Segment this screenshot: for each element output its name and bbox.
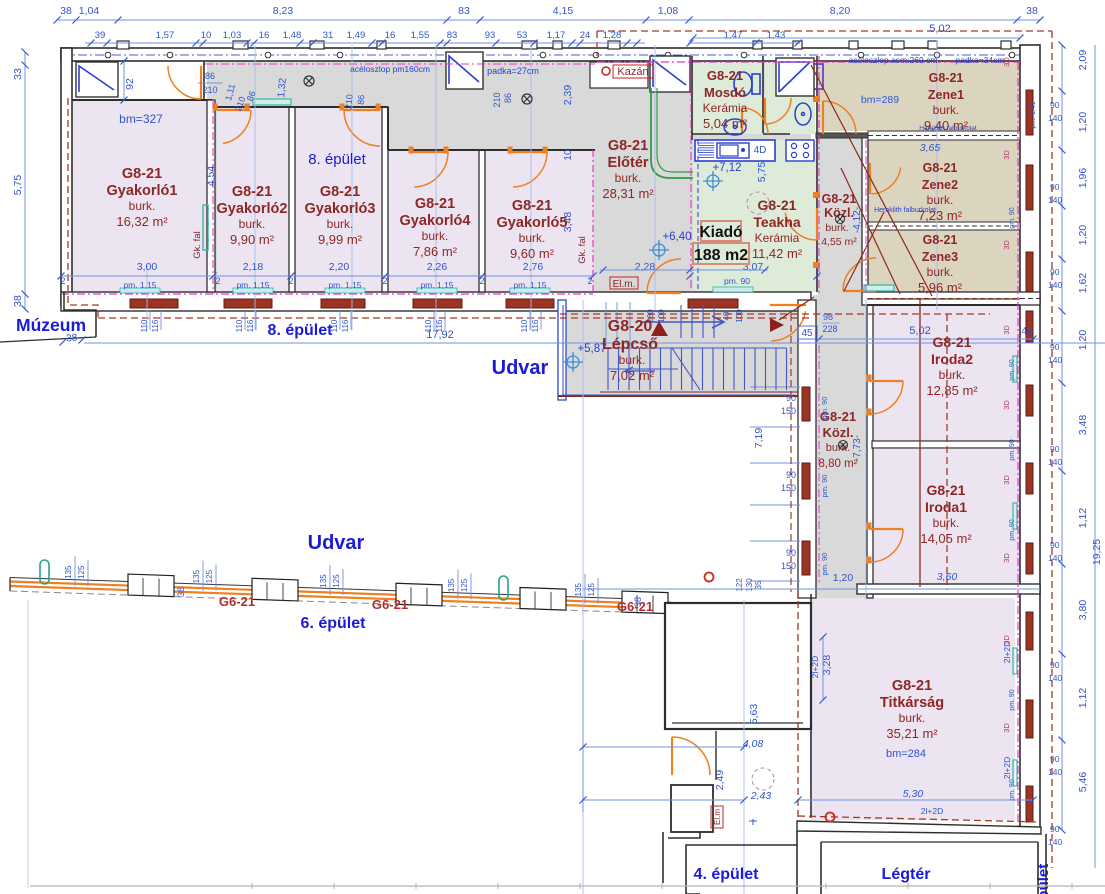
- svg-text:6. épület: 6. épület: [301, 615, 367, 632]
- svg-text:Heraklith falburkolat: Heraklith falburkolat: [919, 125, 977, 132]
- svg-text:9,99 m²: 9,99 m²: [318, 232, 363, 247]
- svg-text:1,55: 1,55: [411, 30, 430, 41]
- svg-text:2: 2: [215, 276, 220, 286]
- svg-text:Gyakorló3: Gyakorló3: [305, 201, 376, 217]
- svg-text:Udvar: Udvar: [308, 532, 365, 554]
- svg-text:24: 24: [580, 30, 591, 41]
- svg-text:93: 93: [485, 30, 496, 41]
- svg-text:1,08: 1,08: [658, 5, 679, 17]
- svg-text:116: 116: [151, 319, 160, 332]
- svg-text:burk.: burk.: [927, 265, 954, 279]
- svg-text:100: 100: [735, 309, 744, 323]
- svg-text:38: 38: [60, 5, 72, 17]
- svg-text:8,20: 8,20: [830, 5, 851, 17]
- svg-text:90: 90: [1050, 540, 1060, 550]
- svg-text:110: 110: [520, 319, 529, 332]
- svg-text:188 m2: 188 m2: [694, 247, 748, 264]
- svg-text:38: 38: [1026, 5, 1038, 17]
- svg-text:140: 140: [1048, 113, 1062, 123]
- svg-text:3D: 3D: [1002, 400, 1011, 410]
- svg-text:pm. 1,15: pm. 1,15: [123, 280, 156, 290]
- svg-text:bm=284: bm=284: [886, 748, 926, 760]
- svg-text:El.m: El.m: [713, 809, 722, 825]
- svg-text:2,09: 2,09: [1077, 50, 1089, 71]
- svg-text:G6-21: G6-21: [617, 599, 653, 614]
- svg-text:9,90 m²: 9,90 m²: [230, 232, 275, 247]
- svg-text:acéloszlop pm160cm: acéloszlop pm160cm: [350, 64, 430, 74]
- svg-text:2,26: 2,26: [427, 261, 448, 273]
- svg-text:Titkárság: Titkárság: [880, 695, 944, 711]
- svg-text:7,19: 7,19: [753, 428, 765, 449]
- svg-text:Kerámia: Kerámia: [703, 101, 748, 115]
- svg-text:9,60 m²: 9,60 m²: [510, 246, 555, 261]
- svg-text:12,85 m²: 12,85 m²: [926, 383, 978, 398]
- svg-text:Gyakorló2: Gyakorló2: [217, 201, 288, 217]
- svg-text:2,20: 2,20: [329, 261, 350, 273]
- svg-text:150: 150: [781, 406, 796, 416]
- svg-text:90: 90: [1050, 100, 1060, 110]
- svg-text:G8-21: G8-21: [927, 482, 966, 498]
- svg-text:1,96: 1,96: [1077, 168, 1089, 189]
- svg-text:3D: 3D: [1002, 723, 1011, 733]
- svg-text:Udvar: Udvar: [492, 357, 549, 379]
- svg-text:3,80: 3,80: [1077, 600, 1089, 621]
- svg-text:1,62: 1,62: [1077, 273, 1089, 294]
- svg-text:2,76: 2,76: [523, 261, 544, 273]
- svg-text:135: 135: [447, 578, 456, 592]
- svg-text:burk.: burk.: [825, 222, 848, 234]
- svg-text:1,03: 1,03: [223, 30, 242, 41]
- svg-text:100: 100: [657, 309, 666, 323]
- svg-text:pm. 90: pm. 90: [1009, 439, 1016, 461]
- svg-text:40: 40: [722, 311, 731, 320]
- svg-text:125: 125: [77, 565, 86, 579]
- svg-text:5,02: 5,02: [929, 23, 950, 35]
- svg-text:140: 140: [1048, 280, 1062, 290]
- svg-text:2,28: 2,28: [635, 261, 656, 273]
- svg-text:G8-21: G8-21: [923, 161, 958, 175]
- svg-text:90: 90: [1050, 754, 1060, 764]
- svg-text:burk.: burk.: [927, 193, 954, 207]
- svg-text:burk.: burk.: [519, 231, 546, 245]
- svg-text:83: 83: [458, 5, 470, 17]
- svg-text:G6-21: G6-21: [372, 597, 408, 612]
- svg-text:burk.: burk.: [422, 229, 449, 243]
- svg-text:burk.: burk.: [933, 103, 960, 117]
- svg-text:Heroklith falburkolat: Heroklith falburkolat: [874, 207, 936, 214]
- svg-text:burk.: burk.: [239, 217, 266, 231]
- svg-text:35: 35: [754, 580, 763, 589]
- svg-text:Kiadó: Kiadó: [699, 224, 742, 241]
- svg-text:G8-21: G8-21: [923, 233, 958, 247]
- svg-text:pm. 1,15: pm. 1,15: [328, 280, 361, 290]
- svg-text:1,48: 1,48: [283, 30, 302, 41]
- svg-text:Légtér: Légtér: [882, 866, 931, 883]
- svg-text:Teakha: Teakha: [753, 214, 800, 230]
- svg-text:5,04 m²: 5,04 m²: [703, 116, 748, 131]
- svg-text:86: 86: [205, 71, 215, 81]
- svg-text:1,57: 1,57: [156, 30, 175, 41]
- svg-text:Lépcső: Lépcső: [602, 336, 658, 353]
- svg-text:1,12: 1,12: [1077, 508, 1089, 529]
- svg-text:burk.: burk.: [129, 199, 156, 213]
- svg-text:38: 38: [176, 587, 186, 597]
- svg-text:+7,12: +7,12: [712, 162, 741, 174]
- svg-text:90: 90: [1050, 660, 1060, 670]
- svg-text:Zene2: Zene2: [922, 178, 958, 192]
- svg-text:1,49: 1,49: [347, 30, 366, 41]
- svg-text:33: 33: [12, 68, 24, 80]
- svg-text:135: 135: [64, 565, 73, 579]
- svg-text:3D: 3D: [1002, 553, 1011, 563]
- svg-text:G6-21: G6-21: [219, 594, 255, 609]
- svg-text:G8-21: G8-21: [232, 184, 272, 200]
- svg-text:90: 90: [1050, 824, 1060, 834]
- svg-text:Gyakorló4: Gyakorló4: [400, 213, 471, 229]
- svg-text:burk.: burk.: [939, 368, 966, 382]
- svg-text:3,48: 3,48: [1077, 415, 1089, 436]
- svg-text:90: 90: [1050, 267, 1060, 277]
- svg-text:44: 44: [1021, 326, 1033, 337]
- svg-text:burk.: burk.: [933, 516, 960, 530]
- svg-text:Előtér: Előtér: [607, 155, 648, 171]
- svg-text:Gk. fal: Gk. fal: [192, 231, 203, 258]
- svg-text:4,08: 4,08: [743, 738, 764, 750]
- svg-text:-4,12-: -4,12-: [852, 207, 863, 233]
- svg-text:38: 38: [66, 333, 78, 345]
- svg-text:4,54: 4,54: [205, 166, 217, 187]
- svg-text:1,20: 1,20: [1077, 112, 1089, 133]
- svg-text:G8-21: G8-21: [512, 198, 552, 214]
- svg-text:3D: 3D: [1002, 240, 1011, 250]
- svg-text:G8-21: G8-21: [608, 138, 648, 154]
- svg-text:2,49: 2,49: [714, 770, 726, 791]
- svg-text:39: 39: [95, 30, 106, 41]
- svg-text:125: 125: [587, 583, 596, 597]
- svg-text:3D: 3D: [1002, 150, 1011, 160]
- svg-text:pm. 90: pm. 90: [820, 553, 829, 576]
- svg-text:1,17: 1,17: [547, 30, 566, 41]
- svg-text:16: 16: [385, 30, 396, 41]
- svg-text:140: 140: [1048, 457, 1062, 467]
- svg-text:90: 90: [1050, 444, 1060, 454]
- svg-text:5,96 m²: 5,96 m²: [918, 280, 963, 295]
- svg-text:Kerámia: Kerámia: [755, 231, 800, 245]
- svg-text:Közl.: Közl.: [822, 425, 853, 440]
- svg-text:Gyakorló1: Gyakorló1: [107, 183, 178, 199]
- svg-text:125: 125: [205, 569, 214, 583]
- svg-text:140: 140: [1048, 837, 1062, 847]
- svg-text:110: 110: [140, 319, 149, 332]
- svg-text:140: 140: [1048, 673, 1062, 683]
- svg-text:3,65: 3,65: [920, 142, 941, 154]
- svg-text:3,00: 3,00: [137, 261, 158, 273]
- svg-text:150: 150: [781, 483, 796, 493]
- svg-text:4,55 m²: 4,55 m²: [821, 236, 857, 248]
- svg-text:+6,40: +6,40: [662, 231, 691, 243]
- svg-text:17,92: 17,92: [426, 329, 454, 341]
- svg-text:210: 210: [492, 92, 502, 107]
- svg-text:Kazán: Kazán: [617, 66, 648, 78]
- svg-text:2,18: 2,18: [243, 261, 264, 273]
- svg-text:31: 31: [323, 30, 334, 41]
- svg-text:pm. 90: pm. 90: [820, 475, 829, 498]
- svg-text:1,43: 1,43: [767, 30, 786, 41]
- svg-text:El.m.: El.m.: [613, 279, 636, 290]
- svg-text:G8-21: G8-21: [822, 192, 857, 206]
- svg-text:G8-21: G8-21: [320, 184, 360, 200]
- svg-text:pm. 1,41: pm. 1,41: [1030, 101, 1037, 128]
- svg-text:35,21 m²: 35,21 m²: [886, 726, 938, 741]
- svg-text:10: 10: [563, 149, 574, 161]
- svg-text:bm=327: bm=327: [119, 112, 163, 126]
- svg-text:4D: 4D: [754, 145, 767, 156]
- svg-text:1,20: 1,20: [833, 572, 854, 584]
- svg-text:1,47: 1,47: [724, 30, 743, 41]
- svg-text:116: 116: [531, 319, 540, 332]
- svg-text:-7,73-: -7,73-: [852, 435, 863, 461]
- svg-text:130: 130: [745, 578, 754, 592]
- svg-text:2: 2: [60, 276, 65, 286]
- svg-text:5,02: 5,02: [909, 325, 930, 337]
- svg-text:228: 228: [822, 324, 837, 334]
- svg-text:G8-21: G8-21: [415, 196, 455, 212]
- svg-text:1,12: 1,12: [1077, 688, 1089, 709]
- svg-text:3D: 3D: [1002, 325, 1011, 335]
- svg-text:G8-21: G8-21: [122, 166, 162, 182]
- svg-text:1,32: 1,32: [276, 77, 289, 98]
- svg-text:116: 116: [246, 319, 255, 332]
- svg-text:1,20: 1,20: [1077, 330, 1089, 351]
- svg-text:burk.: burk.: [327, 217, 354, 231]
- svg-text:G8-21: G8-21: [929, 71, 964, 85]
- svg-text:11,42 m²: 11,42 m²: [752, 246, 803, 261]
- svg-text:10: 10: [201, 30, 212, 41]
- svg-text:G8-21: G8-21: [892, 678, 932, 694]
- svg-text:G8-21: G8-21: [758, 197, 797, 213]
- svg-text:2,43: 2,43: [750, 790, 772, 802]
- svg-text:150: 150: [781, 561, 796, 571]
- svg-text:5,30: 5,30: [903, 788, 924, 800]
- svg-text:8. épület: 8. épület: [268, 322, 334, 339]
- svg-text:28,31 m²: 28,31 m²: [602, 186, 654, 201]
- svg-text:Gyakorló5: Gyakorló5: [497, 215, 568, 231]
- svg-text:1,04: 1,04: [79, 5, 100, 17]
- svg-text:5,63: 5,63: [748, 704, 760, 725]
- svg-text:5,75: 5,75: [12, 175, 24, 196]
- svg-text:4. épület: 4. épület: [694, 866, 760, 883]
- svg-text:5,46: 5,46: [1077, 772, 1089, 793]
- svg-text:38: 38: [12, 295, 24, 307]
- svg-text:90: 90: [1050, 342, 1060, 352]
- svg-text:110: 110: [235, 319, 244, 332]
- svg-text:98: 98: [823, 312, 833, 322]
- svg-text:3D: 3D: [1002, 475, 1011, 485]
- svg-text:140: 140: [1048, 195, 1062, 205]
- svg-text:pm. 90: pm. 90: [820, 397, 829, 420]
- svg-text:125: 125: [460, 578, 469, 592]
- svg-text:G8-20: G8-20: [608, 318, 653, 335]
- svg-text:210: 210: [343, 94, 354, 110]
- svg-text:16,32 m²: 16,32 m²: [116, 214, 168, 229]
- svg-text:Iroda2: Iroda2: [931, 351, 973, 367]
- svg-text:19,25: 19,25: [1091, 539, 1103, 565]
- svg-text:140: 140: [1048, 553, 1062, 563]
- svg-text:135: 135: [319, 574, 328, 588]
- svg-text:Zene1: Zene1: [928, 88, 964, 102]
- svg-text:8,23: 8,23: [273, 5, 294, 17]
- svg-text:pm. 1,15: pm. 1,15: [420, 280, 453, 290]
- svg-text:pm. 90: pm. 90: [1009, 689, 1016, 711]
- svg-text:90: 90: [1050, 182, 1060, 192]
- svg-text:210: 210: [202, 85, 217, 95]
- svg-text:G8-21: G8-21: [707, 68, 743, 83]
- svg-text:burk.: burk.: [619, 353, 646, 367]
- svg-text:acéloszlop asm:269 cm: acéloszlop asm:269 cm: [849, 55, 938, 65]
- svg-text:burk.: burk.: [899, 711, 926, 725]
- svg-text:padka=27cm: padka=27cm: [487, 66, 539, 76]
- svg-text:8. épület: 8. épület: [308, 151, 366, 168]
- svg-text:Zene3: Zene3: [922, 250, 958, 264]
- svg-text:14,05 m²: 14,05 m²: [920, 531, 972, 546]
- svg-text:125: 125: [332, 574, 341, 588]
- svg-text:86: 86: [356, 94, 367, 105]
- svg-text:2l+2D: 2l+2D: [1002, 757, 1012, 779]
- svg-text:2l+2D: 2l+2D: [921, 806, 943, 816]
- svg-text:1,20: 1,20: [1077, 225, 1089, 246]
- svg-text:pm. 1,15: pm. 1,15: [236, 280, 269, 290]
- svg-text:burk.: burk.: [615, 171, 642, 185]
- svg-text:bm=289: bm=289: [861, 94, 899, 106]
- svg-text:83: 83: [447, 30, 458, 41]
- svg-text:3D: 3D: [1002, 635, 1011, 645]
- svg-text:2l+2D: 2l+2D: [810, 656, 820, 678]
- svg-text:Mosdó: Mosdó: [704, 85, 746, 100]
- svg-text:7,02 m²: 7,02 m²: [610, 368, 655, 383]
- svg-text:53: 53: [517, 30, 528, 41]
- svg-text:4,15: 4,15: [553, 5, 574, 17]
- svg-text:86: 86: [503, 93, 513, 103]
- svg-text:1,28: 1,28: [603, 30, 622, 41]
- svg-text:pm. 1,15: pm. 1,15: [513, 280, 546, 290]
- svg-text:7,86 m²: 7,86 m²: [413, 244, 458, 259]
- svg-text:2,39: 2,39: [562, 85, 574, 106]
- svg-text:116: 116: [341, 319, 350, 332]
- svg-text:16: 16: [259, 30, 270, 41]
- svg-text:140: 140: [1048, 767, 1062, 777]
- svg-text:5,75: 5,75: [756, 162, 768, 183]
- svg-text:pm. 90: pm. 90: [724, 276, 750, 286]
- svg-text:G8-21: G8-21: [933, 334, 972, 350]
- svg-text:45: 45: [801, 328, 813, 339]
- svg-text:135: 135: [574, 583, 583, 597]
- svg-text:pm. 90: pm. 90: [1009, 207, 1016, 229]
- svg-text:3,60: 3,60: [937, 571, 958, 583]
- svg-text:92: 92: [124, 78, 136, 90]
- svg-text:140: 140: [1048, 355, 1062, 365]
- svg-text:3D: 3D: [1002, 57, 1011, 67]
- svg-text:padka=34cm: padka=34cm: [956, 55, 1005, 65]
- svg-text:135: 135: [192, 569, 201, 583]
- svg-text:+5,87: +5,87: [577, 343, 606, 355]
- svg-text:Iroda1: Iroda1: [925, 499, 967, 515]
- svg-text:Gk. fal: Gk. fal: [577, 236, 588, 263]
- svg-text:122: 122: [735, 578, 744, 592]
